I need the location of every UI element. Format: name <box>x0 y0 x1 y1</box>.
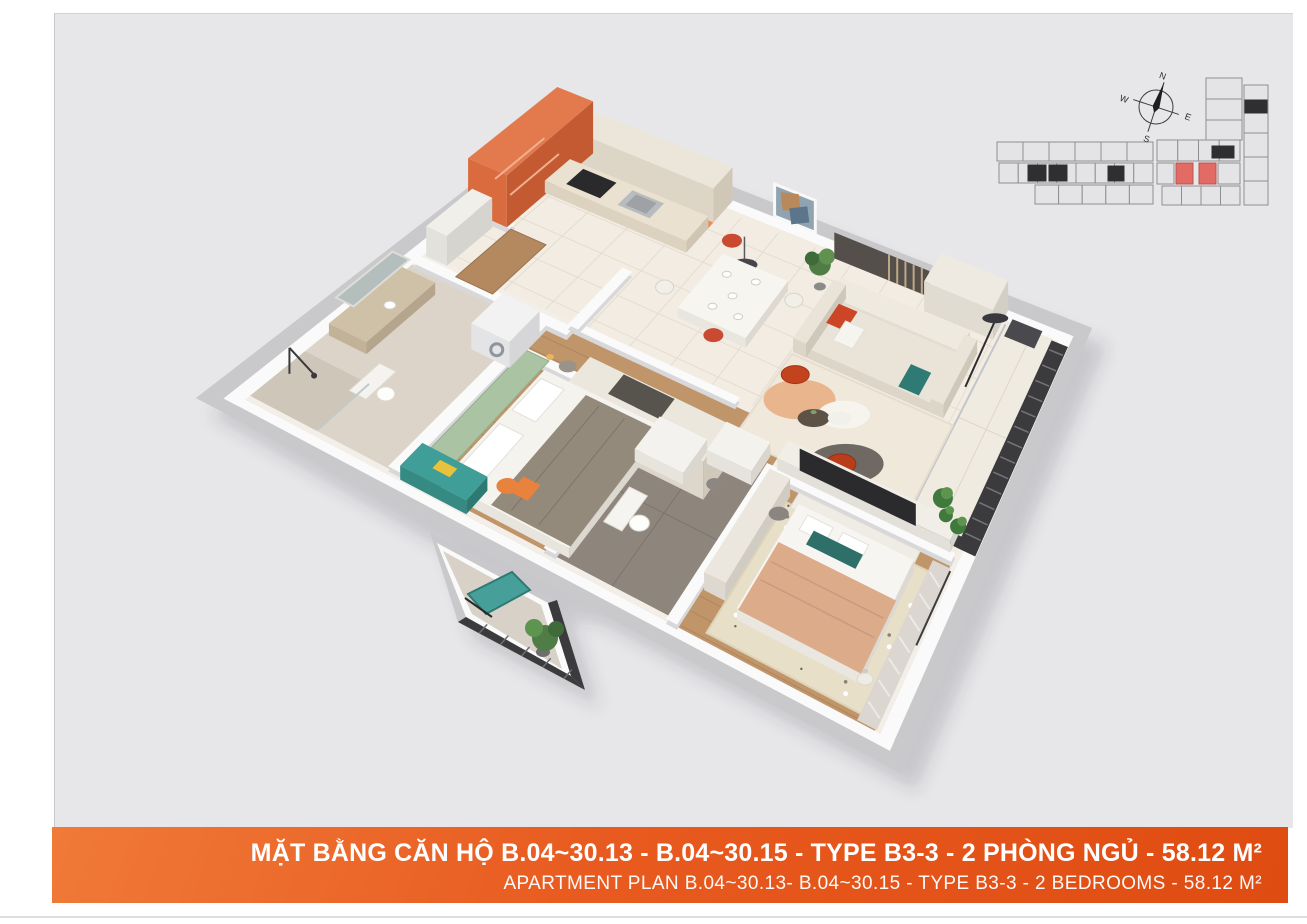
unit-cell <box>1106 185 1130 204</box>
unit-cell <box>1129 185 1153 204</box>
unit-cell <box>1244 181 1268 205</box>
unit-cell <box>1049 142 1075 161</box>
banner-title-vi: MẶT BẰNG CĂN HỘ B.04~30.13 - B.04~30.15 … <box>52 836 1262 870</box>
compass-rose: N E W S <box>1118 70 1192 145</box>
unit-cell <box>1035 185 1059 204</box>
page-bottom-divider <box>0 916 1307 918</box>
unit-cell <box>1244 157 1268 181</box>
unit-cell <box>1182 186 1202 205</box>
unit-cell <box>1201 186 1221 205</box>
unit-cell <box>1157 163 1174 184</box>
unit-cell <box>1028 165 1046 181</box>
unit-cell <box>1075 142 1101 161</box>
unit-cell <box>1244 133 1268 157</box>
unit-cell <box>1212 146 1234 158</box>
unit-cell <box>1127 142 1153 161</box>
unit-cell <box>1101 142 1127 161</box>
unit-cell <box>1157 140 1178 161</box>
floorplan-render: N E W S <box>0 0 1307 924</box>
unit-cell <box>1108 166 1124 181</box>
unit-cell <box>1076 163 1095 183</box>
unit-cell <box>1221 186 1241 205</box>
highlighted-unit <box>1199 163 1216 184</box>
compass-north-label: N <box>1158 70 1168 82</box>
unit-cell <box>1178 140 1199 161</box>
unit-cell <box>1082 185 1106 204</box>
unit-cell <box>1134 163 1153 183</box>
unit-cell <box>1218 163 1240 184</box>
unit-cell <box>1162 186 1182 205</box>
info-banner: MẶT BẰNG CĂN HỘ B.04~30.13 - B.04~30.15 … <box>52 827 1288 903</box>
compass-east-label: E <box>1183 111 1192 122</box>
site-key-plan <box>997 78 1268 205</box>
unit-cell <box>1049 165 1067 181</box>
compass-graphics <box>1133 82 1179 131</box>
unit-cell <box>1023 142 1049 161</box>
unit-cell <box>1059 185 1083 204</box>
unit-cell <box>1245 100 1267 113</box>
highlighted-unit <box>1176 163 1193 184</box>
unit-cell <box>1206 78 1242 140</box>
unit-cell <box>997 142 1023 161</box>
compass-west-label: W <box>1118 93 1130 105</box>
unit-cell <box>999 163 1018 183</box>
banner-title-en: APARTMENT PLAN B.04~30.13- B.04~30.15 - … <box>52 870 1262 897</box>
